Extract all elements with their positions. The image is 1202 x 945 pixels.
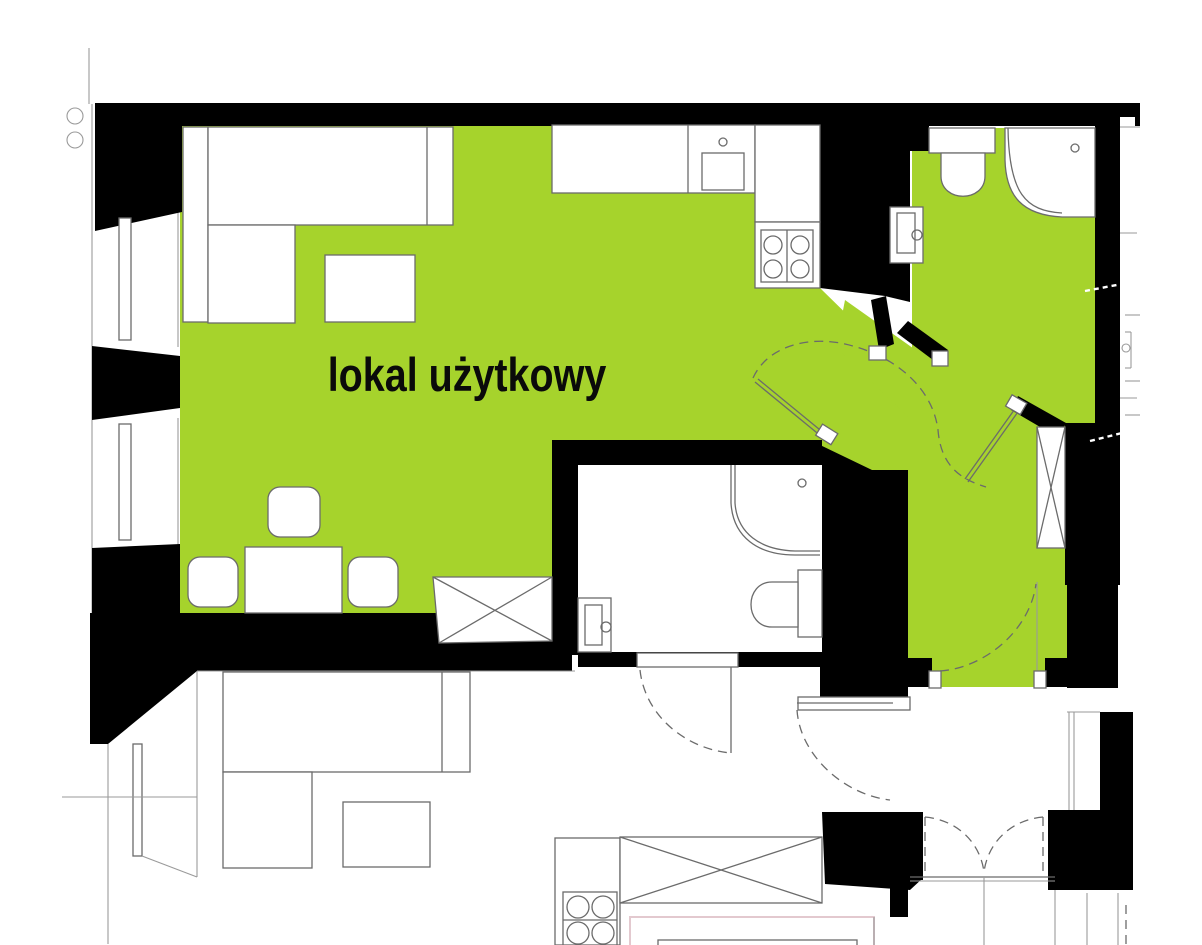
wall-bath2-right xyxy=(818,444,908,697)
wall-br-left-mass xyxy=(822,812,923,890)
dining-table xyxy=(245,547,342,613)
washbasin-right xyxy=(890,207,923,263)
wall-bath2-left xyxy=(552,440,578,655)
kitchen-sink xyxy=(702,153,744,190)
entry-jamb-right xyxy=(1045,658,1067,687)
wall-top xyxy=(95,103,1140,126)
window-lower xyxy=(133,744,142,856)
door-stop xyxy=(932,351,948,366)
chair-top xyxy=(268,487,320,537)
wall-right-lower xyxy=(1067,585,1118,688)
door-stop xyxy=(929,671,941,688)
wall-left-pier1 xyxy=(92,346,180,420)
neighbor-bed xyxy=(223,672,470,772)
neighbor-table xyxy=(658,940,857,945)
wardrobe-top xyxy=(208,127,453,225)
door-stop xyxy=(869,346,886,360)
wall-br-right-mass xyxy=(1048,810,1133,890)
floor-plan: lokal użytkowy xyxy=(0,0,1202,945)
small-table-top xyxy=(325,255,415,322)
shaft-box-right xyxy=(1037,427,1065,548)
wall-vestibule-step xyxy=(890,880,908,917)
shaft-box-bottom xyxy=(620,837,822,903)
shaft-box-main xyxy=(433,577,552,643)
wardrobe-side xyxy=(183,127,208,322)
neighbor-cabinet2 xyxy=(343,802,430,867)
neighbor-cabinet1 xyxy=(223,772,312,868)
wall-stair-block xyxy=(1100,712,1133,810)
chair-left xyxy=(188,557,238,607)
window-upper xyxy=(119,218,131,340)
premises-label: lokal użytkowy xyxy=(328,350,607,402)
sofa-block xyxy=(208,225,295,323)
washbasin-center xyxy=(578,598,611,652)
wall-right-upper xyxy=(1095,118,1120,427)
wall-left-block xyxy=(95,103,182,231)
floor-plan-drawing: lokal użytkowy xyxy=(0,0,1202,945)
premises-label-group: lokal użytkowy xyxy=(328,350,607,402)
wall-left-pier2 xyxy=(92,544,180,613)
wall-bath2-top xyxy=(552,440,822,465)
chair-right xyxy=(348,557,398,607)
window-middle xyxy=(119,424,131,540)
door-stop xyxy=(1034,671,1046,688)
wall-right-mid xyxy=(1065,423,1120,585)
kitchen-counter-corner xyxy=(755,125,820,222)
neighbor-stove xyxy=(563,892,617,945)
